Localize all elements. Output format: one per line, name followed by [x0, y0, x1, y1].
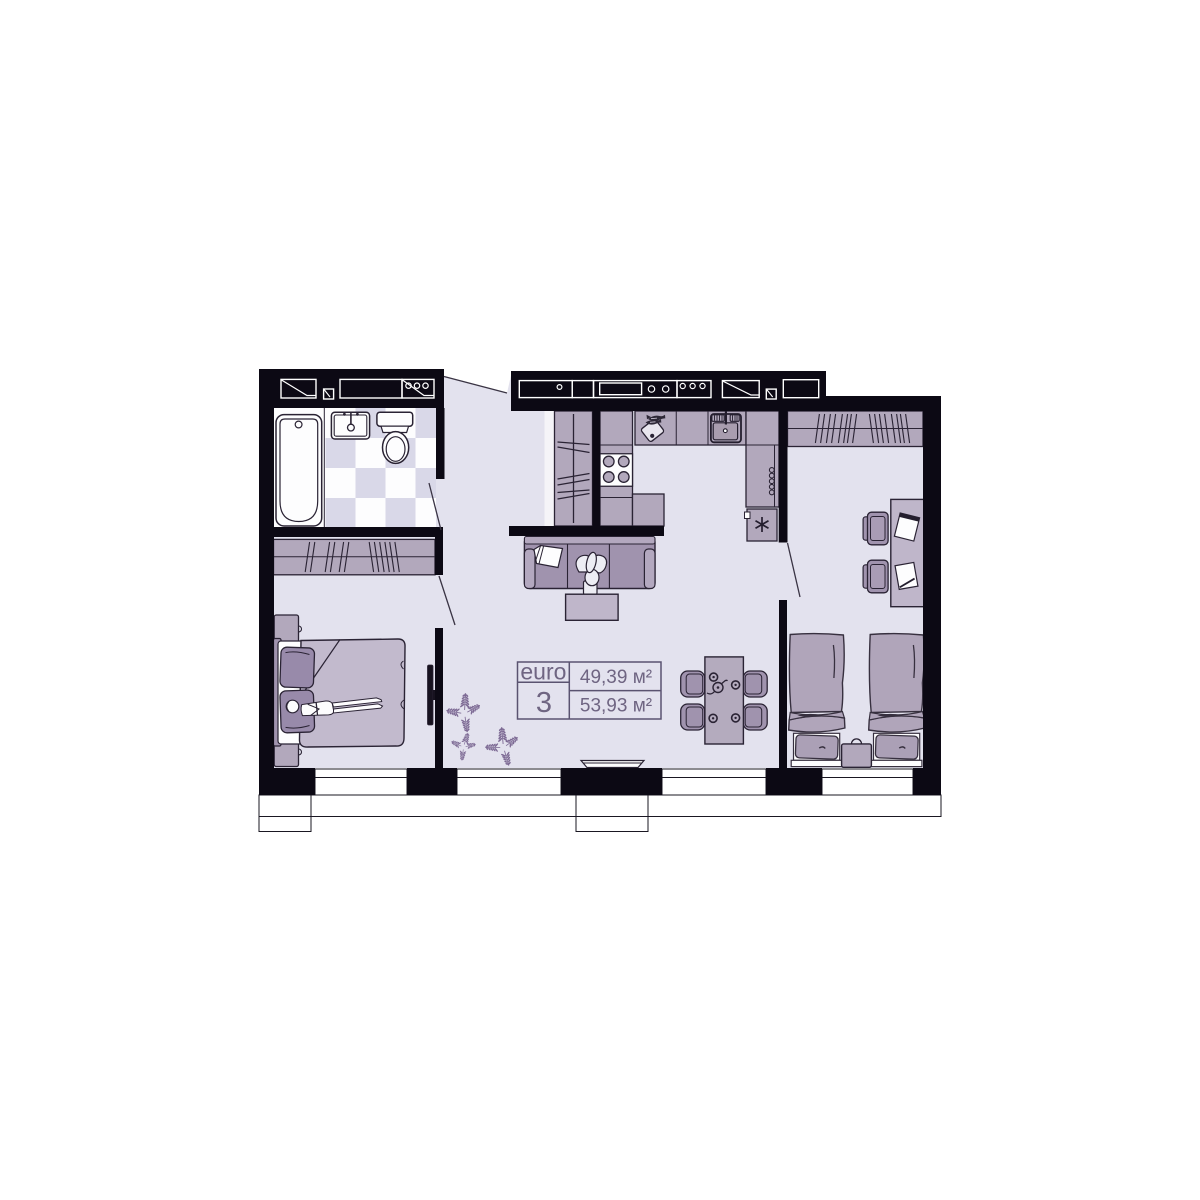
svg-text:3: 3: [536, 687, 552, 719]
svg-text:49,39 м²: 49,39 м²: [580, 667, 652, 688]
svg-text:53,93 м²: 53,93 м²: [580, 696, 652, 717]
svg-text:euro: euro: [520, 659, 566, 685]
